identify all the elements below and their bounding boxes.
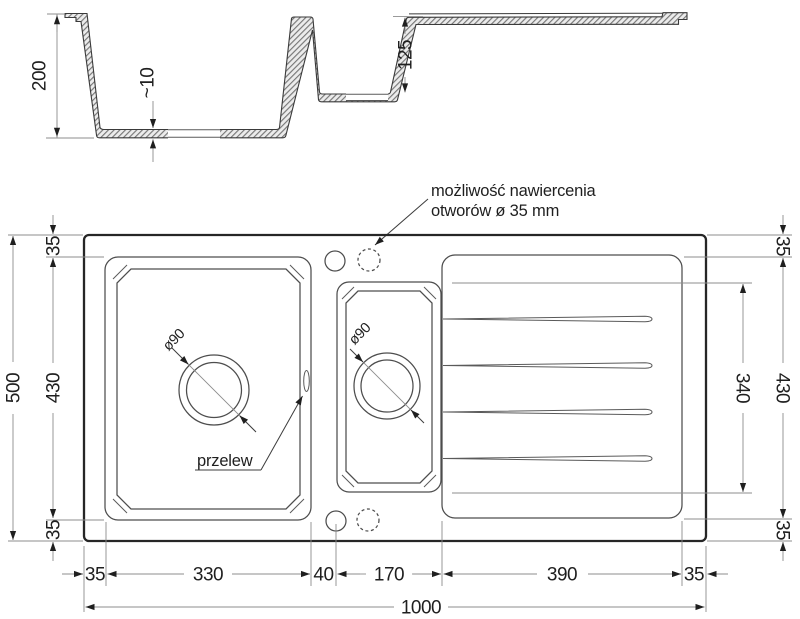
drawing-canvas: 200 ~10 125 możliwość nawiercenia otworó… <box>0 0 800 619</box>
dim-200-label: 200 <box>30 61 51 91</box>
dim-right-top-label: 35 <box>771 236 792 256</box>
small-drain-diameter-label: ø90 <box>346 320 375 349</box>
dim-125-label: 125 <box>396 40 417 70</box>
drainer-groove <box>443 316 652 322</box>
drill-note-line2: otworów ø 35 mm <box>431 202 559 220</box>
dim-bottom-5: 390 <box>547 565 577 586</box>
dim-bottom-thickness: ~10 <box>138 68 159 162</box>
plan-view: możliwość nawiercenia otworów ø 35 mm ø9… <box>4 182 793 619</box>
dim-left-middle-label: 430 <box>44 373 65 403</box>
drainer-groove <box>443 456 652 462</box>
drainer-top-edge <box>409 13 663 14</box>
dim-500-label: 500 <box>4 373 25 403</box>
drill-note-line1: możliwość nawiercenia <box>431 182 597 200</box>
dim-bottom-6: 35 <box>684 565 704 586</box>
dim-left-group: 500 35 430 35 <box>4 215 104 561</box>
dim-right-bottom-label: 35 <box>771 520 792 540</box>
small-drain: ø90 <box>346 320 424 423</box>
overflow-label: przelew <box>197 452 253 470</box>
dim-left-top-label: 35 <box>44 236 65 256</box>
dim-bottom-4: 170 <box>374 565 404 586</box>
dim-10-label: ~10 <box>138 68 159 99</box>
dim-bottom-1: 35 <box>85 565 105 586</box>
dim-bottom-3: 40 <box>313 565 333 586</box>
main-drain: ø90 <box>160 326 256 432</box>
dim-left-bottom-label: 35 <box>44 520 65 540</box>
drainer-groove <box>443 409 652 415</box>
overflow-callout: przelew <box>195 396 303 470</box>
drainer-board <box>442 255 682 518</box>
drainer-groove <box>443 363 652 369</box>
tap-hole-top <box>325 251 345 271</box>
tap-hole-bottom-optional <box>357 509 379 531</box>
tap-hole-top-optional <box>358 249 380 271</box>
section-view: 200 ~10 125 <box>30 13 687 162</box>
small-bowl-drain-gap <box>346 93 388 101</box>
dim-340-label: 340 <box>731 373 752 403</box>
dim-right-group: 35 430 35 340 <box>452 215 792 561</box>
dim-1000-label: 1000 <box>401 598 441 619</box>
dim-bottom-group: 35 330 40 170 390 35 1000 <box>62 521 728 619</box>
main-drain-diameter-label: ø90 <box>160 326 189 355</box>
sink-technical-drawing: 200 ~10 125 możliwość nawiercenia otworó… <box>0 0 800 619</box>
dim-bottom-2: 330 <box>193 565 223 586</box>
small-bowl: ø90 <box>337 282 441 492</box>
dim-right-middle-label: 430 <box>771 373 792 403</box>
main-bowl: ø90 przelew <box>105 257 311 520</box>
overflow-slot <box>304 371 310 392</box>
sink-outline <box>84 235 706 541</box>
main-bowl-drain-gap <box>168 129 220 139</box>
